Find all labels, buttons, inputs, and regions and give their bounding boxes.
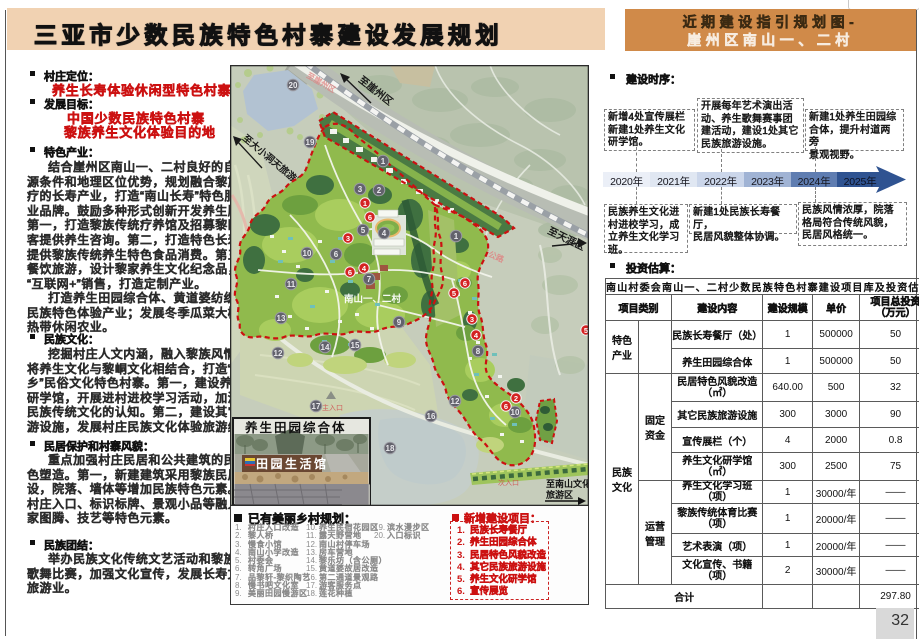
svg-text:1: 1 — [381, 157, 386, 166]
svg-text:旅游区: 旅游区 — [546, 489, 573, 500]
svg-text:20: 20 — [289, 81, 298, 90]
svg-text:16: 16 — [427, 412, 436, 421]
svg-text:养生田园综合体: 养生田园综合体 — [244, 420, 347, 435]
svg-text:12: 12 — [274, 349, 283, 358]
svg-text:2: 2 — [514, 394, 518, 403]
svg-text:5: 5 — [452, 289, 456, 298]
svg-text:主入口: 主入口 — [322, 403, 343, 412]
svg-text:至南山文化: 至南山文化 — [546, 478, 589, 489]
svg-text:14: 14 — [321, 343, 330, 352]
svg-text:6: 6 — [334, 250, 339, 259]
svg-text:17: 17 — [312, 402, 321, 411]
svg-text:10: 10 — [511, 408, 520, 417]
svg-text:3: 3 — [346, 234, 350, 243]
svg-text:1: 1 — [454, 232, 459, 241]
svg-text:6: 6 — [463, 279, 467, 288]
svg-text:19: 19 — [306, 138, 315, 147]
svg-text:3: 3 — [358, 185, 363, 194]
svg-text:5: 5 — [584, 326, 588, 335]
svg-text:南山一、二村: 南山一、二村 — [344, 293, 402, 305]
svg-text:1: 1 — [363, 199, 367, 208]
svg-text:12: 12 — [451, 397, 460, 406]
svg-text:13: 13 — [277, 314, 286, 323]
svg-text:5: 5 — [361, 226, 366, 235]
svg-text:3: 3 — [470, 315, 474, 324]
svg-text:8: 8 — [476, 347, 481, 356]
svg-text:15: 15 — [351, 341, 360, 350]
svg-text:6: 6 — [504, 402, 508, 411]
svg-text:11: 11 — [287, 280, 296, 289]
svg-text:2: 2 — [377, 186, 382, 195]
svg-text:4: 4 — [382, 229, 387, 238]
svg-text:9: 9 — [397, 318, 402, 327]
svg-text:10: 10 — [303, 249, 312, 258]
svg-text:次入口: 次入口 — [498, 478, 519, 487]
svg-text:18: 18 — [386, 444, 395, 453]
svg-text:7: 7 — [367, 275, 372, 284]
svg-text:田园生活馆: 田园生活馆 — [256, 456, 329, 471]
svg-text:6: 6 — [368, 213, 372, 222]
svg-text:6: 6 — [348, 268, 352, 277]
